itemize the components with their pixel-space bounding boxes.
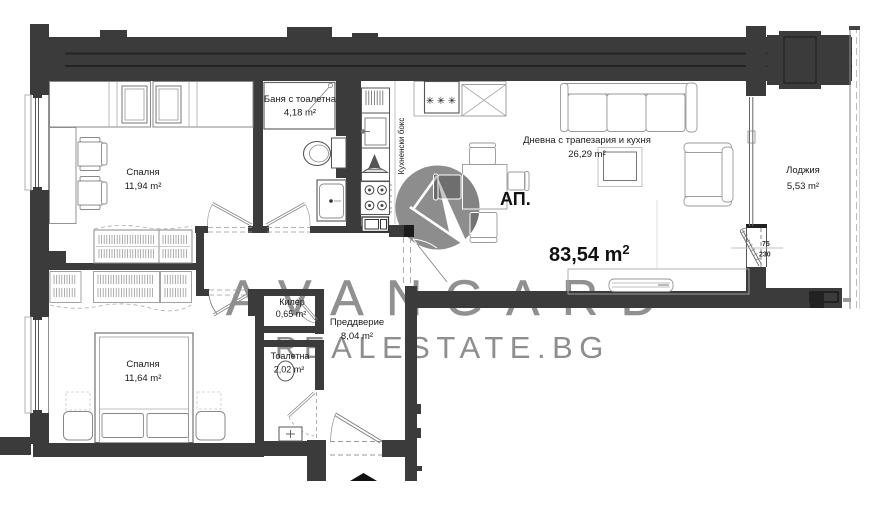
svg-text:✳: ✳ <box>437 96 445 107</box>
svg-text:REALESTATE.BG: REALESTATE.BG <box>275 330 610 365</box>
svg-text:4,18 m²: 4,18 m² <box>284 108 316 119</box>
svg-text:Баня с тоалетна: Баня с тоалетна <box>264 94 337 105</box>
svg-text:✳: ✳ <box>426 96 434 107</box>
svg-text:Тоалетна: Тоалетна <box>271 351 310 361</box>
svg-text:Спалня: Спалня <box>126 359 159 370</box>
svg-text:АП.: АП. <box>500 189 531 209</box>
svg-text:Дневна с трапезария и кухня: Дневна с трапезария и кухня <box>523 135 651 146</box>
svg-text:5,53 m²: 5,53 m² <box>787 181 819 192</box>
svg-text:0,65 m²: 0,65 m² <box>276 309 307 319</box>
svg-text:Спалня: Спалня <box>126 167 159 178</box>
svg-text:Лоджия: Лоджия <box>786 165 820 176</box>
svg-text:✳: ✳ <box>448 96 456 107</box>
svg-text:2,02 m²: 2,02 m² <box>274 365 305 375</box>
svg-text:230: 230 <box>759 252 771 259</box>
svg-text:Кухненски бокс: Кухненски бокс <box>397 118 406 175</box>
svg-text:26,29 m²: 26,29 m² <box>568 149 606 160</box>
svg-text:11,94 m²: 11,94 m² <box>125 181 162 192</box>
svg-text:83,54 m2: 83,54 m2 <box>549 242 630 267</box>
svg-text:Преддверие: Преддверие <box>330 317 384 328</box>
svg-text:75: 75 <box>762 241 770 248</box>
svg-text:11,64 m²: 11,64 m² <box>125 373 162 384</box>
svg-text:8,04 m²: 8,04 m² <box>341 331 373 342</box>
svg-text:Килер: Килер <box>279 297 305 307</box>
